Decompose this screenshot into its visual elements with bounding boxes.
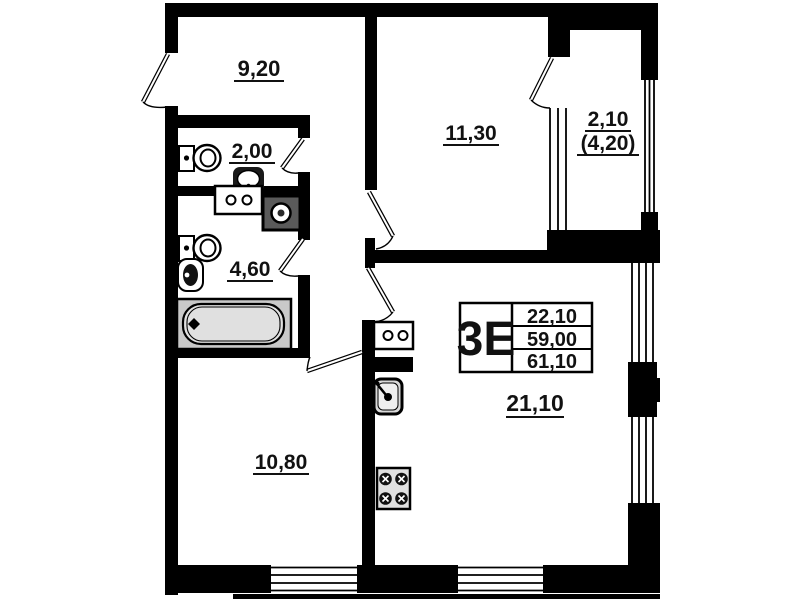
wall-left-upper bbox=[165, 3, 178, 53]
unit-type-label: 3Е bbox=[457, 313, 516, 366]
wall-corridor-a bbox=[298, 115, 310, 138]
wall-bottom-3 bbox=[543, 565, 660, 593]
wall-balcony-door-stub bbox=[548, 17, 570, 57]
wall-bottom-sill bbox=[233, 594, 660, 599]
pier-right-mid bbox=[628, 362, 657, 417]
floor-plan-drawing: 3Е 22,10 59,00 61,10 9,20 2,00 4,60 11,3… bbox=[0, 0, 799, 600]
area-label-room-lower: 10,80 bbox=[255, 451, 308, 474]
bathroom-door bbox=[280, 239, 303, 276]
stove bbox=[377, 468, 410, 509]
pier-right-low-bump bbox=[655, 522, 660, 572]
area-label-balcony: 2,10 bbox=[588, 108, 629, 131]
bathtub bbox=[177, 299, 291, 349]
window-bottom-left bbox=[271, 568, 357, 591]
kitchen-sink bbox=[374, 379, 402, 414]
pier-balcony-top bbox=[641, 22, 658, 80]
window-right-lower bbox=[632, 417, 653, 503]
window-balcony-right bbox=[645, 80, 654, 212]
wc-door bbox=[282, 139, 303, 173]
window-balcony-partition bbox=[550, 108, 566, 230]
wall-room-upper-bottom bbox=[368, 250, 553, 263]
wall-hall-bottom bbox=[178, 115, 310, 128]
wall-bottom-1 bbox=[165, 565, 271, 593]
kitchen-door bbox=[368, 268, 393, 322]
table-row-total-area: 59,00 bbox=[527, 329, 577, 351]
kitchen-washer bbox=[374, 322, 413, 349]
window-bottom-right bbox=[458, 568, 543, 591]
wall-hall-roomupper bbox=[365, 17, 377, 190]
area-label-bathroom: 4,60 bbox=[230, 258, 271, 281]
window-right-upper bbox=[632, 263, 653, 362]
table-row-living-area: 22,10 bbox=[527, 306, 577, 328]
wall-balcony-bottom bbox=[547, 230, 660, 263]
toilet-wc bbox=[179, 145, 221, 171]
floor-plan: 3Е 22,10 59,00 61,10 9,20 2,00 4,60 11,3… bbox=[0, 0, 799, 600]
area-label-room-upper: 11,30 bbox=[445, 122, 496, 145]
toilet-bathroom bbox=[179, 235, 221, 261]
area-label-wc: 2,00 bbox=[232, 140, 273, 163]
room-lower-door bbox=[307, 352, 362, 371]
area-label-kitchen-living: 21,10 bbox=[506, 390, 564, 416]
info-table: 3Е 22,10 59,00 61,10 bbox=[457, 303, 592, 373]
entrance-door bbox=[143, 54, 168, 107]
wall-kitchen-stub bbox=[374, 357, 413, 372]
washing-machine bbox=[215, 186, 262, 214]
balcony-door bbox=[531, 58, 552, 108]
area-label-balcony-secondary: (4,20) bbox=[581, 132, 636, 155]
table-row-total-with-balcony: 61,10 bbox=[527, 351, 577, 373]
wall-kitchen-left bbox=[362, 320, 375, 565]
bidet-sink bbox=[178, 259, 203, 291]
wall-bottom-2 bbox=[357, 565, 458, 593]
water-heater bbox=[263, 196, 300, 230]
area-label-hallway: 9,20 bbox=[238, 56, 281, 81]
wall-corridor-stub bbox=[365, 238, 375, 268]
wall-corridor-c bbox=[298, 275, 310, 355]
pier-right-mid-bump bbox=[655, 378, 660, 402]
wall-top bbox=[165, 3, 548, 17]
